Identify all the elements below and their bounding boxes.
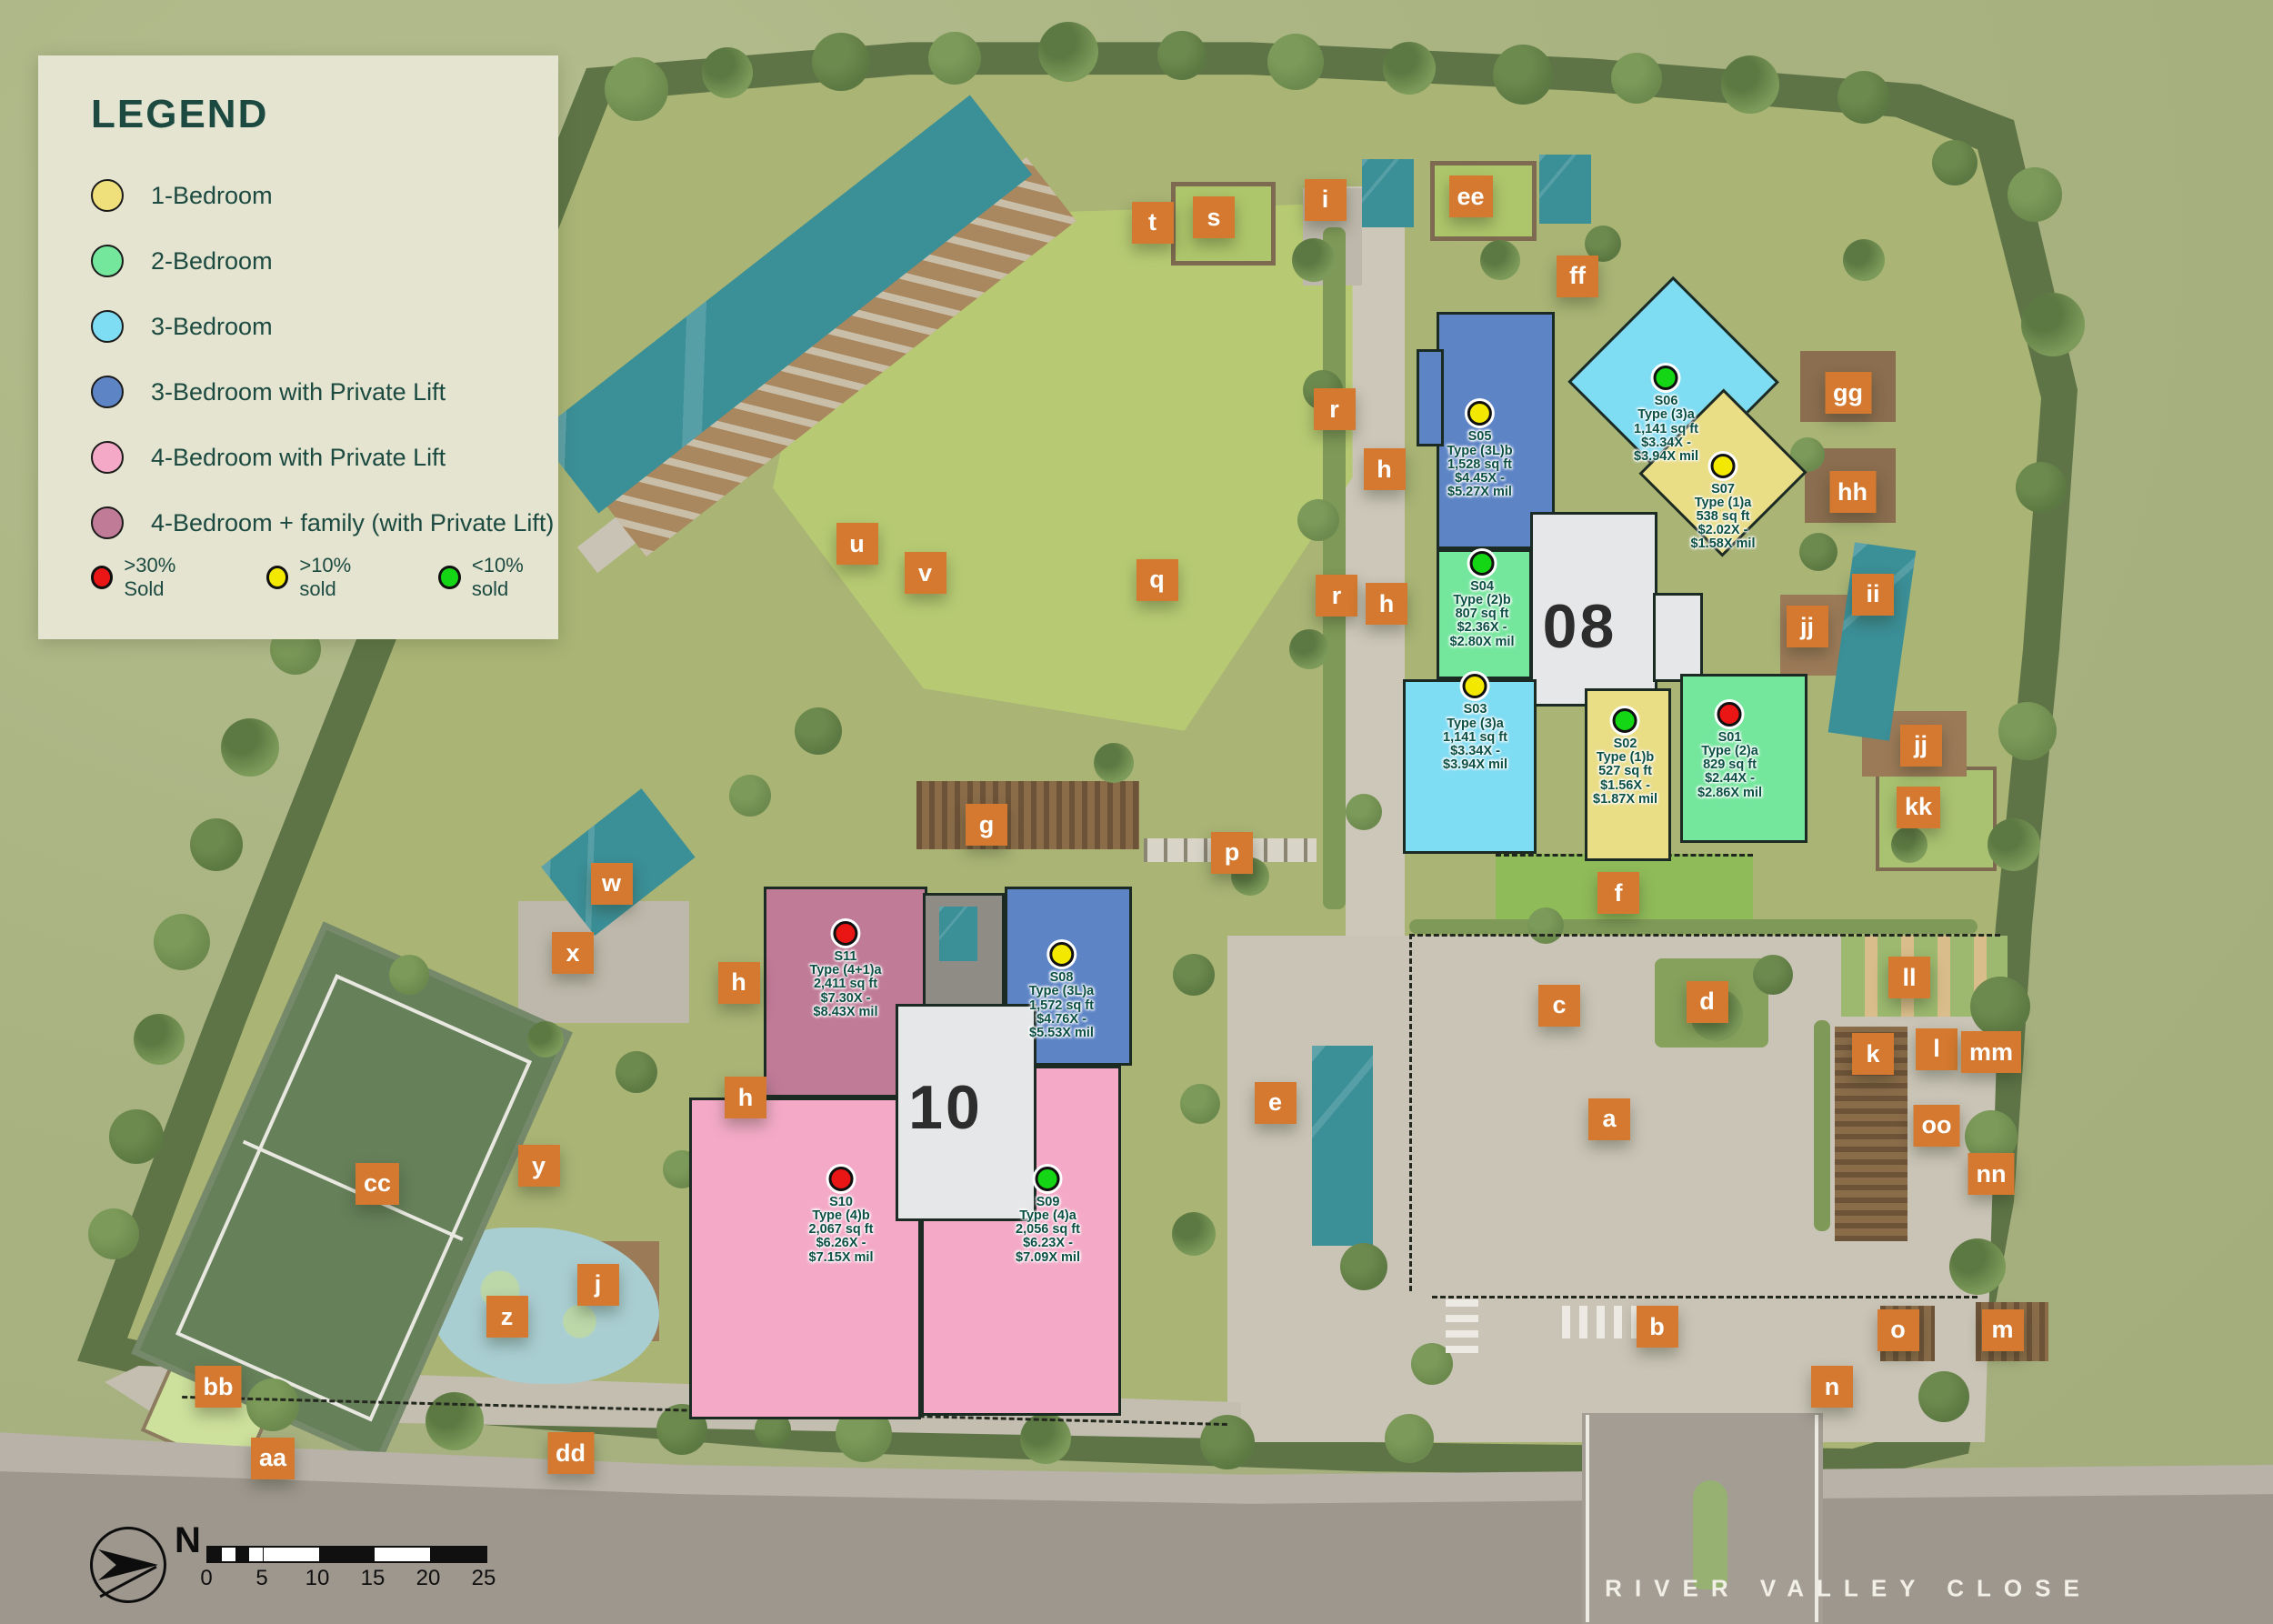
boundary-dash-drive [1432,1296,1978,1298]
unit-area: 2,411 sq ft [814,977,877,991]
legend-item: 1-Bedroom [91,163,558,228]
sold-status-label: >30% Sold [124,554,214,601]
tree-icon [1998,702,2057,760]
unit-label: S09 Type (4)a 2,056 sq ft $6.23X - $7.09… [1016,1167,1080,1265]
hedge-drive [1409,919,1978,934]
unit-price-low: $2.02X - [1698,524,1748,537]
unit-label: S11 Type (4+1)a 2,411 sq ft $7.30X - $8.… [809,921,881,1019]
legend-color-dot-icon [91,310,124,343]
tree-icon [1970,977,2030,1037]
unit-status-dot-icon [834,921,858,946]
unit-status-dot-icon [1467,401,1492,426]
unit-price-low: $4.45X - [1455,472,1505,486]
tree-icon [88,1208,139,1259]
legend-item: 4-Bedroom + family (with Private Lift) [91,490,558,556]
scale-segment [264,1548,319,1561]
boundary-dash-top [1409,934,2000,937]
facility-marker: mm [1961,1031,2021,1073]
unit-id: S05 [1468,430,1492,444]
unit-price-low: $7.30X - [821,992,871,1006]
g-pergola [916,781,1139,849]
tree-icon [2016,462,2067,513]
facility-marker: m [1982,1309,2024,1351]
facility-marker: j [577,1264,619,1306]
facility-marker: jj [1787,606,1828,647]
legend-item-label: 4-Bedroom + family (with Private Lift) [151,509,554,537]
facility-marker: h [1364,448,1406,490]
tree-icon [1891,827,1928,863]
facility-marker: i [1305,179,1347,221]
unit-status-dot-icon [1654,366,1678,390]
legend-item-label: 4-Bedroom with Private Lift [151,444,446,472]
tower-08-core-wing [1653,593,1703,682]
unit-price-low: $6.23X - [1023,1237,1073,1250]
tree-icon [1799,533,1837,571]
facility-marker: p [1211,832,1253,874]
scale-tick-label: 20 [416,1566,441,1591]
facility-marker: n [1811,1366,1853,1408]
unit-label: S07 Type (1)a 538 sq ft $2.02X - $1.58X … [1691,454,1756,552]
unit-price-high: $7.15X mil [809,1251,874,1265]
legend-item: 2-Bedroom [91,228,558,294]
tree-icon [812,33,870,91]
entry-line-left [1586,1415,1589,1622]
unit-id: S02 [1614,737,1637,751]
legend-item: 3-Bedroom with Private Lift [91,359,558,425]
sold-status-item: <10% sold [438,554,558,601]
facility-marker: ee [1448,175,1492,217]
hedge-central [1323,227,1346,909]
unit-area: 527 sq ft [1598,765,1652,778]
tree-icon [2008,167,2062,222]
tree-icon [221,718,279,777]
unit-area: 1,572 sq ft [1029,999,1094,1013]
hedge-courtyard [1814,1020,1830,1231]
unit-status-dot-icon [829,1167,854,1191]
facility-marker: nn [1968,1153,2015,1195]
tree-icon [109,1109,164,1164]
scale-bar [206,1546,487,1563]
building-s05-wing [1417,349,1444,446]
unit-id: S11 [835,950,857,964]
compass-north-label: N [175,1520,201,1561]
unit-area: 829 sq ft [1703,758,1757,772]
tree-icon [1753,955,1793,995]
tree-icon [1611,53,1662,104]
legend-panel: LEGEND 1-Bedroom 2-Bedroom 3-Bedroom 3-B… [38,55,558,639]
unit-price-high: $3.94X mil [1443,758,1507,772]
e-pool [1312,1046,1374,1246]
unit-area: 1,528 sq ft [1447,458,1512,472]
tree-icon [1346,794,1382,830]
tree-icon [928,32,981,85]
tree-icon [1721,55,1779,114]
tree-icon [729,775,771,817]
unit-label: S05 Type (3L)b 1,528 sq ft $4.45X - $5.2… [1447,401,1512,499]
tree-icon [795,707,842,755]
legend-item-label: 3-Bedroom with Private Lift [151,378,446,406]
tower-number: 10 [908,1072,983,1143]
tree-icon [2021,293,2085,356]
legend-sold-status: >30% Sold >10% sold <10% sold [91,554,558,601]
entrance-median [1693,1480,1727,1589]
sold-status-label: >10% sold [299,554,386,601]
tree-icon [1932,140,1978,185]
facility-marker: jj [1900,725,1942,767]
facility-marker: x [552,932,594,974]
unit-price-high: $2.80X mil [1450,636,1515,649]
scale-tick-label: 25 [472,1566,496,1591]
facility-marker: ff [1557,256,1598,297]
unit-price-low: $2.44X - [1705,772,1755,786]
facility-marker: r [1316,575,1357,617]
tree-icon [426,1392,484,1450]
facility-marker: ll [1888,957,1930,998]
unit-price-low: $3.34X - [1641,436,1691,450]
tree-icon [389,955,429,995]
facility-marker: o [1877,1309,1919,1351]
legend-item-label: 2-Bedroom [151,247,273,276]
facility-marker: ii [1852,574,1894,616]
tree-icon [1837,71,1890,124]
unit-price-low: $3.34X - [1450,745,1500,758]
scale-segment [430,1548,486,1561]
unit-area: 2,067 sq ft [809,1223,874,1237]
compass-icon [90,1527,166,1603]
facility-marker: t [1132,202,1174,244]
ee-pool-right [1539,155,1592,225]
sold-status-label: <10% sold [472,554,558,601]
tree-icon [1383,42,1436,95]
tree-icon [246,1378,299,1431]
scale-tick-label: 15 [361,1566,386,1591]
sold-status-item: >10% sold [266,554,386,601]
tree-icon [1949,1238,2006,1295]
tree-icon [1493,45,1553,105]
unit-area: 538 sq ft [1697,510,1750,524]
tree-icon [702,47,753,98]
tree-icon [134,1014,185,1065]
sold-status-dot-icon [266,566,288,589]
facility-marker: q [1136,559,1178,601]
building-s10 [689,1098,921,1419]
facility-marker: d [1687,981,1728,1023]
unit-label: S06 Type (3)a 1,141 sq ft $3.34X - $3.94… [1634,366,1698,464]
unit-status-dot-icon [1470,551,1495,576]
unit-price-high: $1.87X mil [1593,793,1657,807]
facility-marker: y [518,1145,560,1187]
facility-marker: aa [251,1438,295,1479]
facility-marker: hh [1829,471,1876,513]
facility-marker: oo [1914,1105,1960,1147]
scale-segment [208,1548,264,1561]
unit-status-dot-icon [1463,674,1487,698]
tree-icon [1157,31,1207,80]
unit-status-dot-icon [1613,708,1637,733]
scale-labels: 0510152025 [206,1566,484,1593]
unit-price-high: $3.94X mil [1634,450,1698,464]
unit-id: S03 [1464,703,1487,717]
unit-label: S08 Type (3L)a 1,572 sq ft $4.76X - $5.5… [1029,942,1094,1040]
facility-marker: h [725,1077,766,1118]
unit-id: S04 [1470,580,1494,594]
unit-id: S08 [1050,971,1074,985]
legend-color-dot-icon [91,376,124,408]
facility-marker: cc [355,1163,399,1205]
tree-icon [1843,239,1885,281]
facility-marker: h [1366,583,1407,625]
tree-icon [1297,499,1339,541]
facility-marker: k [1852,1033,1894,1075]
facility-marker: e [1255,1082,1297,1124]
unit-area: 807 sq ft [1456,607,1509,621]
site-plan: RIVER VALLEY CLOSE N 0510152025 LEGEND 1… [0,0,2273,1624]
unit-price-low: $2.36X - [1457,621,1507,635]
unit-label: S04 Type (2)b 807 sq ft $2.36X - $2.80X … [1450,551,1515,649]
legend-item: 3-Bedroom [91,294,558,359]
facility-marker: r [1314,388,1356,430]
unit-status-dot-icon [1711,454,1736,478]
facility-marker: bb [195,1366,242,1408]
tree-icon [1292,238,1336,282]
crosswalk-2 [1446,1299,1478,1353]
unit-price-low: $1.56X - [1600,779,1650,793]
unit-price-high: $2.86X mil [1697,787,1762,800]
ee-pool-left [1362,159,1415,227]
facility-marker: s [1193,196,1235,238]
boundary-dash-left [1409,934,1412,1291]
sold-status-dot-icon [438,566,460,589]
facility-marker: dd [547,1432,594,1474]
facility-marker: u [836,523,878,565]
facility-marker: h [718,962,760,1004]
unit-label: S02 Type (1)b 527 sq ft $1.56X - $1.87X … [1593,708,1657,807]
unit-price-high: $8.43X mil [814,1006,878,1019]
road-name-label: RIVER VALLEY CLOSE [1605,1575,2092,1603]
tree-icon [1173,954,1215,996]
tree-icon [605,57,668,121]
legend-color-dot-icon [91,441,124,474]
legend-item-label: 3-Bedroom [151,313,273,341]
sold-status-item: >30% Sold [91,554,214,601]
tree-icon [1527,907,1564,944]
central-walkway [1346,186,1405,941]
facility-marker: gg [1825,372,1871,414]
facility-marker: w [591,863,633,905]
facility-marker: c [1538,985,1580,1027]
unit-status-dot-icon [1717,702,1742,727]
scale-tick-label: 5 [255,1566,267,1591]
tree-icon [1267,34,1324,90]
unit-area: 2,056 sq ft [1016,1223,1080,1237]
facility-marker: l [1916,1028,1958,1070]
unit-id: S07 [1711,483,1735,496]
scale-segment [375,1548,430,1561]
legend-color-dot-icon [91,506,124,539]
unit-id: S09 [1036,1196,1060,1209]
unit-price-low: $6.26X - [816,1237,866,1250]
scale-segment [319,1548,375,1561]
legend-color-dot-icon [91,245,124,277]
unit-label: S01 Type (2)a 829 sq ft $2.44X - $2.86X … [1697,702,1762,800]
unit-id: S01 [1718,731,1742,745]
facility-marker: b [1637,1306,1678,1348]
unit-price-high: $1.58X mil [1691,537,1756,551]
tree-icon [1988,818,2040,871]
tree-icon [1480,240,1520,280]
unit-id: S10 [829,1196,853,1209]
tree-icon [1172,1212,1216,1256]
unit-status-dot-icon [1036,1167,1060,1191]
scale-tick-label: 0 [200,1566,212,1591]
tree-icon [1918,1371,1969,1422]
tree-icon [1340,1243,1387,1290]
unit-area: 1,141 sq ft [1634,423,1698,436]
unit-area: 1,141 sq ft [1443,731,1507,745]
tree-icon [1385,1414,1434,1463]
compass-needle-icon [98,1549,158,1580]
legend-title: LEGEND [91,92,558,137]
tree-icon [527,1021,564,1058]
sold-status-dot-icon [91,566,113,589]
unit-status-dot-icon [1049,942,1074,967]
unit-price-low: $4.76X - [1036,1013,1086,1027]
facility-marker: kk [1897,787,1940,828]
unit-price-high: $7.09X mil [1016,1251,1080,1265]
unit-id: S06 [1655,395,1678,408]
facility-marker: v [905,552,946,594]
legend-items: 1-Bedroom 2-Bedroom 3-Bedroom 3-Bedroom … [38,163,558,556]
scale-tick-label: 10 [305,1566,330,1591]
unit-label: S03 Type (3)a 1,141 sq ft $3.34X - $3.94… [1443,674,1507,772]
facility-marker: a [1588,1098,1630,1140]
tree-icon [616,1051,657,1093]
tree-icon [190,818,243,871]
legend-item-label: 1-Bedroom [151,182,273,210]
legend-color-dot-icon [91,179,124,212]
unit-price-high: $5.53X mil [1029,1027,1094,1040]
tree-icon [154,914,210,970]
facility-marker: f [1597,872,1639,914]
facility-marker: z [486,1296,528,1338]
tower-10-roof-pool [939,907,978,962]
tree-icon [1038,22,1098,82]
facility-marker: g [966,804,1007,846]
unit-label: S10 Type (4)b 2,067 sq ft $6.26X - $7.15… [809,1167,874,1265]
tower-number: 08 [1543,591,1617,662]
unit-price-high: $5.27X mil [1447,486,1512,499]
legend-item: 4-Bedroom with Private Lift [91,425,558,490]
